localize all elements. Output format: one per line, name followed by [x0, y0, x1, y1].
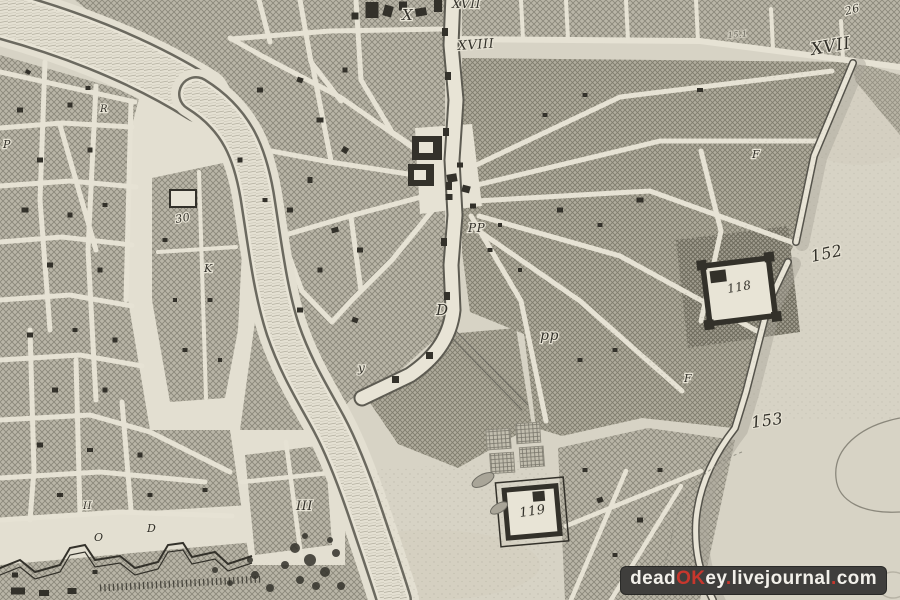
building-mark	[308, 177, 313, 183]
building-mark	[138, 453, 143, 458]
historical-map-scan: XXVIIXVIIIXVII2615.1152153118119IIIDppPP…	[0, 0, 900, 600]
building-mark	[27, 333, 33, 338]
building-mark	[73, 328, 78, 332]
map-label-pp: pp	[540, 328, 559, 344]
watermark-text: ey	[705, 568, 726, 589]
building-mark	[87, 448, 93, 452]
map-label-P: P	[2, 138, 11, 151]
tree-mark	[332, 549, 340, 557]
building-mark	[498, 223, 502, 227]
building-mark	[598, 223, 603, 227]
building-mark	[613, 553, 618, 557]
estate-building-30	[170, 190, 196, 207]
building-mark	[183, 348, 188, 352]
tree-mark	[212, 567, 218, 573]
building-mark	[218, 358, 222, 362]
building-mark	[637, 518, 643, 523]
building-mark	[318, 268, 323, 273]
building-mark	[457, 163, 463, 168]
building-mark	[148, 493, 153, 497]
watermark-text: com	[837, 568, 877, 589]
tree-mark	[320, 567, 330, 577]
map-label-II: II	[82, 501, 92, 512]
tree-mark	[251, 571, 259, 579]
map-label-D: D	[146, 522, 156, 535]
building-mark	[12, 573, 18, 578]
building-mark	[257, 88, 263, 93]
map-image: XXVIIXVIIIXVII2615.1152153118119IIIDppPP…	[0, 0, 900, 600]
building-mark	[88, 148, 93, 153]
map-label-PP: PP	[467, 221, 486, 235]
watermark-accent-text: OK	[676, 568, 705, 589]
building-mark	[103, 388, 108, 393]
building-mark	[446, 194, 453, 200]
building-mark	[297, 308, 303, 313]
map-label-XVIII: XVIII	[456, 36, 495, 54]
building-mark	[68, 103, 73, 108]
building-mark	[86, 86, 91, 90]
building-mark	[208, 298, 213, 302]
building-mark	[697, 88, 703, 92]
building-mark	[287, 208, 293, 213]
map-label-F: F	[751, 148, 760, 161]
building-mark	[68, 213, 73, 218]
building-mark	[518, 268, 522, 272]
building-mark	[163, 238, 168, 242]
building-mark	[93, 570, 98, 574]
building-mark	[366, 2, 379, 18]
building-mark	[203, 488, 208, 492]
building-mark	[11, 588, 25, 595]
tree-mark	[312, 582, 320, 590]
building-mark	[613, 348, 618, 352]
tree-mark	[296, 576, 304, 584]
building-mark	[583, 93, 588, 97]
map-label-XVII: XVII	[451, 0, 481, 11]
building-mark	[357, 248, 363, 253]
watermark-text: dead	[630, 568, 676, 589]
building-mark	[488, 248, 493, 252]
map-label-D: D	[435, 301, 449, 319]
building-mark	[470, 204, 476, 209]
watermark: deadOKey.livejournal.com	[621, 567, 886, 594]
watermark-text: livejournal	[732, 568, 831, 589]
building-mark	[22, 208, 29, 213]
tree-mark	[227, 580, 233, 586]
building-mark	[113, 338, 118, 343]
map-label-30: 30	[174, 211, 191, 226]
building-mark	[637, 198, 644, 203]
building-mark	[39, 590, 49, 596]
building-mark	[68, 588, 77, 594]
map-label-y: y	[357, 361, 365, 375]
building-mark	[103, 203, 108, 207]
tree-mark	[337, 582, 345, 590]
map-label-X: X	[401, 6, 414, 24]
building-mark	[57, 493, 63, 497]
building-mark	[543, 113, 548, 117]
tree-mark	[327, 537, 333, 543]
building-mark	[263, 198, 268, 202]
map-label-III: III	[295, 499, 313, 514]
building-mark	[583, 468, 588, 472]
building-mark	[238, 158, 243, 163]
building-mark	[317, 118, 324, 123]
building-mark	[17, 108, 23, 113]
tree-mark	[290, 543, 300, 553]
building-mark	[52, 388, 58, 393]
tree-mark	[266, 584, 274, 592]
building-mark	[47, 263, 53, 268]
map-label-15.1: 15.1	[727, 29, 748, 40]
map-label-F: F	[683, 372, 692, 385]
building-mark	[98, 268, 103, 273]
building-mark	[434, 0, 442, 12]
building-mark	[343, 68, 348, 73]
building-mark	[352, 13, 359, 20]
tree-mark	[247, 557, 253, 563]
map-label-R: R	[99, 104, 108, 115]
building-mark	[446, 173, 457, 183]
building-mark	[173, 298, 177, 302]
tree-mark	[304, 554, 316, 566]
building-mark	[37, 443, 43, 448]
building-mark	[578, 358, 583, 362]
building-mark	[658, 468, 663, 472]
tree-mark	[302, 533, 308, 539]
building-mark	[557, 208, 563, 213]
tree-mark	[281, 561, 289, 569]
map-label-O: O	[94, 531, 104, 544]
building-mark	[37, 158, 43, 163]
map-label-K: K	[203, 262, 213, 275]
